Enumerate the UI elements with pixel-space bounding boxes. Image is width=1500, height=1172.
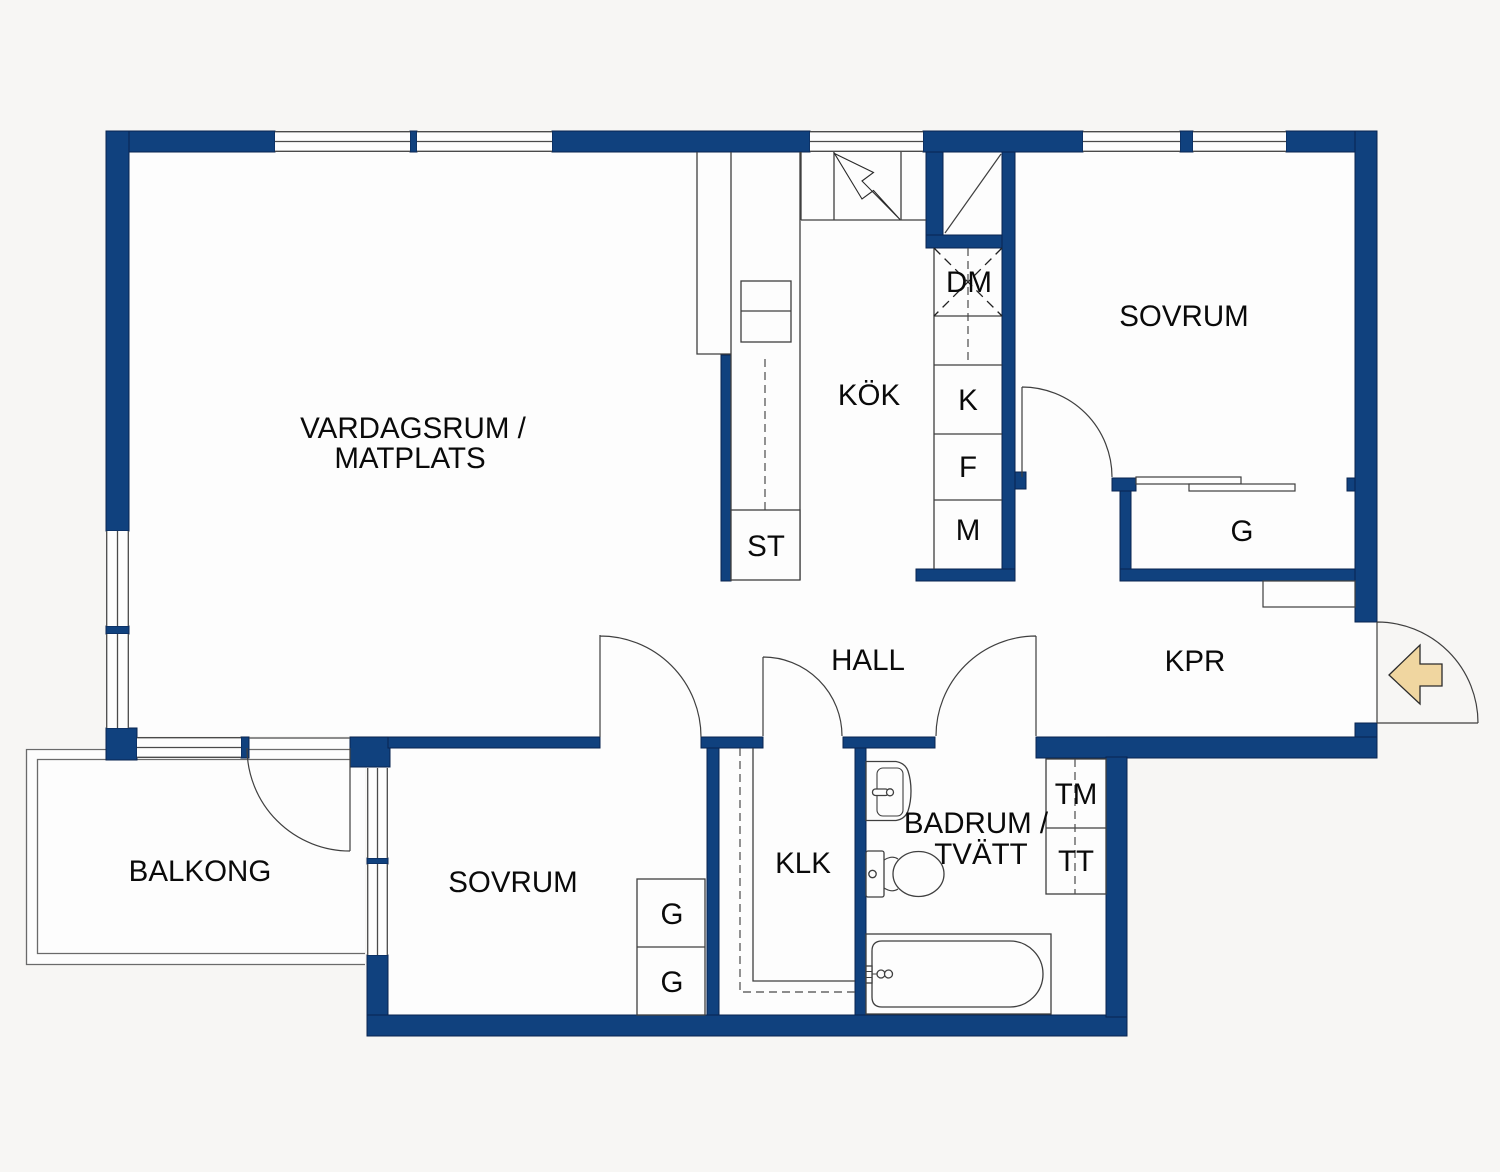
svg-text:SOVRUM: SOVRUM xyxy=(1119,300,1248,333)
svg-text:MATPLATS: MATPLATS xyxy=(334,442,485,475)
svg-text:TVÄTT: TVÄTT xyxy=(934,838,1027,871)
svg-text:F: F xyxy=(959,451,977,484)
svg-text:G: G xyxy=(661,898,684,931)
svg-text:KÖK: KÖK xyxy=(838,379,901,412)
svg-text:KPR: KPR xyxy=(1165,645,1226,678)
svg-text:G: G xyxy=(1231,515,1254,548)
svg-text:M: M xyxy=(956,514,981,547)
svg-text:HALL: HALL xyxy=(831,644,905,677)
svg-text:G: G xyxy=(661,966,684,999)
svg-text:BALKONG: BALKONG xyxy=(129,855,272,888)
svg-text:KLK: KLK xyxy=(775,847,831,880)
svg-text:BADRUM /: BADRUM / xyxy=(904,807,1049,840)
svg-text:K: K xyxy=(958,384,978,417)
svg-text:SOVRUM: SOVRUM xyxy=(448,866,577,899)
svg-text:ST: ST xyxy=(747,530,785,563)
svg-text:VARDAGSRUM /: VARDAGSRUM / xyxy=(300,412,526,445)
svg-text:TM: TM xyxy=(1055,778,1098,811)
svg-text:TT: TT xyxy=(1058,845,1094,878)
svg-text:DM: DM xyxy=(946,266,992,299)
